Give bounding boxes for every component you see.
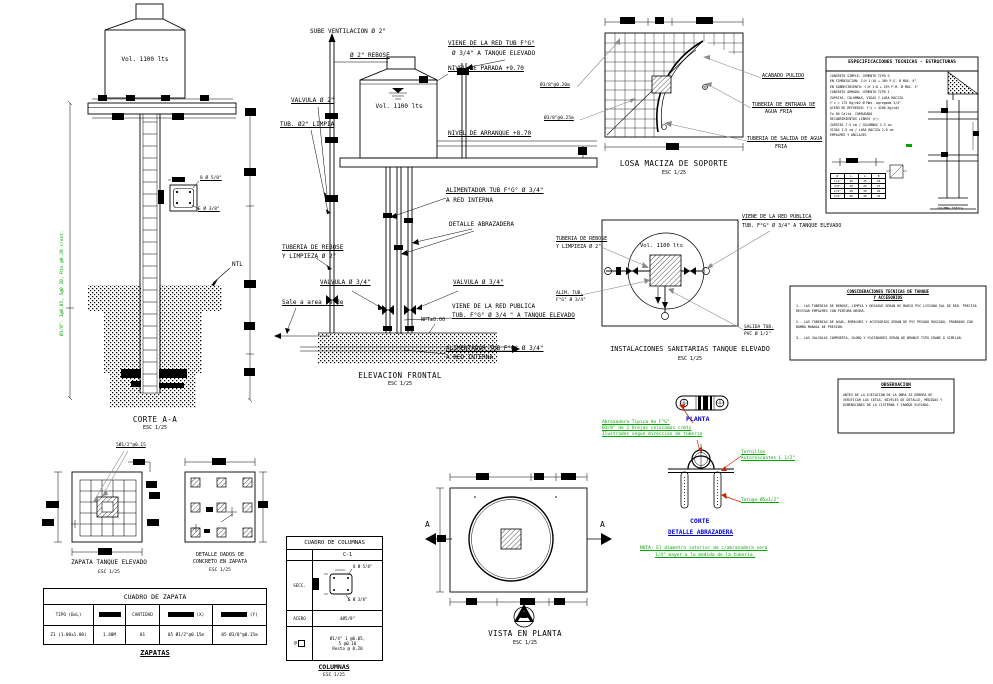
entrada-label-1: TUBERIA DE ENTRADA DE xyxy=(752,103,815,109)
abrazadera-nota-2: 1/4" mayor a la medida de la tuberia. xyxy=(655,553,755,558)
cc-sketch-bar-top: 8 Ø 5/8" xyxy=(353,565,372,569)
viene-red-label-1: VIENE DE LA RED TUB F°G° xyxy=(448,41,535,48)
cz-header-tipo: TIPO (BxL) xyxy=(44,605,94,626)
alimentador1-label-1: ALIMENTADOR TUB F°G° Ø 3/4" xyxy=(446,188,544,195)
inst-rebose-label-2: Y LIMPIEZA Ø 2" xyxy=(556,245,601,251)
corte-title: CORTE A-A xyxy=(118,416,192,424)
columnas-footer-scale: ESC 1/25 xyxy=(299,673,369,678)
vista-scale: ESC 1/25 xyxy=(465,641,585,647)
consideraciones-item: 3.- LAS VALVULAS COMPUERTA, GLOBO Y FLOT… xyxy=(796,336,980,341)
cc-title: CUADRO DE COLUMNAS xyxy=(287,537,383,550)
ntl-label: NTL xyxy=(232,262,243,269)
elevacion-title: ELEVACION FRONTAL xyxy=(350,372,450,380)
abrazadera-green-note-1: Abrazadera Tipica de F°G° xyxy=(602,420,670,425)
empalme-cell: 50 xyxy=(844,194,858,199)
dados-drawing xyxy=(185,458,268,542)
cuadro-zapata-table: CUADRO DE ZAPATA TIPO (BxL) CANTIDAD (X)… xyxy=(43,588,267,645)
tuberia-rebose-label-2: Y LIMPIEZA Ø 2" xyxy=(282,254,336,261)
salida-label-1: TUBERIA DE SALIDA DE AGUA xyxy=(747,137,822,143)
empalme-cell: 25 xyxy=(872,194,886,199)
entrada-label-2: AGUA FRIA xyxy=(765,110,792,116)
red-publica-label-1: VIENE DE LA RED PUBLICA xyxy=(452,304,535,311)
alimentador2-label-2: A RED INTERNA xyxy=(446,355,493,362)
dados-scale: ESC 1/25 xyxy=(184,568,256,573)
cc-secc-label: SECC. xyxy=(287,561,313,611)
cz-header-y-suffix: (Y) xyxy=(250,613,258,618)
inst-rebose-label-1: TUBERIA DE REBOSE xyxy=(556,237,607,243)
cz-header-x-suffix: (X) xyxy=(196,613,204,618)
cad-sheet: NTL 8 Ø 5/8" E Ø 3/8" CORTE A-A ESC 1/25… xyxy=(0,0,993,684)
cc-acero-value: 4Ø5/8" xyxy=(313,611,383,627)
abrazadera-planta-title: PLANTA xyxy=(686,416,709,423)
espec-title: ESPECIFICACIONES TECNICAS - ESTRUCTURAS xyxy=(828,60,976,65)
cz-cell-peralte: 1.40M xyxy=(94,626,126,645)
nivel-arranque-label: NIVEL DE ARRANQUE +8.70 xyxy=(448,131,531,138)
zapata-rebar-label: 5Ø1/2"@0.15 xyxy=(116,443,146,448)
elev-tank-volume: Vol. 1100 lts xyxy=(370,104,428,111)
tuberia-rebose-label-1: TUBERIA DE REBOSE xyxy=(282,245,343,252)
npt-label: NPT±0.00 xyxy=(421,318,445,324)
cc-estribo-line: Resto @ 0.20 xyxy=(314,646,381,651)
empalme-cell: 5/8" xyxy=(831,194,845,199)
tub-limpia-label: TUB. Ø2" LIMPIA xyxy=(280,122,334,129)
observacion-title: OBSERVACION xyxy=(840,383,952,388)
abrazadera-detalle-title: DETALLE ABRAZADERA xyxy=(668,530,733,537)
cc-col-id: C-1 xyxy=(313,550,383,561)
instalaciones-scale: ESC 1/25 xyxy=(590,357,790,363)
salida-label-2: FRIA xyxy=(775,145,787,151)
abrazadera-corte-title: CORTE xyxy=(690,518,710,525)
section-marker-a-left: A xyxy=(425,521,430,530)
cuadro-columnas-table: CUADRO DE COLUMNAS C-1 SECC. ACERO4Ø5/8"… xyxy=(286,536,383,661)
zapata-title: ZAPATA TANQUE ELEVADO xyxy=(60,560,158,567)
empalme-table: Ø L A B 1/4" 20 15 10 3/8" 30 25 15 1/2"… xyxy=(830,173,886,199)
tornillos-label-2: Autoroscantes L 1/2" xyxy=(741,456,795,461)
valvula2-label: VALVULA Ø 2" xyxy=(291,98,334,105)
zapata-scale: ESC 1/25 xyxy=(60,570,158,575)
vista-title: VISTA EN PLANTA xyxy=(465,630,585,638)
cz-cell-cantidad: 01 xyxy=(126,626,160,645)
columna-tipica-label: COLUMNA TIPICA xyxy=(920,207,980,210)
losa-rebar-label-2: Ø3/8"@0.25m xyxy=(544,116,574,121)
cz-cell-tipo: Z1 (1.00x1.00) xyxy=(44,626,94,645)
instalaciones-drawing xyxy=(581,220,770,330)
abrazadera-green-note-3: Ilustrados segun direccion de tuberia xyxy=(602,432,702,437)
instalaciones-title: INSTALACIONES SANITARIAS TANQUE ELEVADO xyxy=(590,346,790,354)
cc-empty xyxy=(287,550,313,561)
cz-header-peralte-bar xyxy=(94,605,126,626)
empalme-cell: 40 xyxy=(858,194,872,199)
consideraciones-title-2: Y ACCESORIOS xyxy=(792,296,984,300)
rebose-label: Ø 2" REBOSE xyxy=(350,53,390,60)
losa-title: LOSA MACIZA DE SOPORTE xyxy=(604,160,744,168)
stirrup-icon xyxy=(298,640,305,647)
sale-verde-label: Sale a area verde xyxy=(282,300,343,307)
inst-salida-label-2: PVC Ø 1/2" xyxy=(744,332,771,337)
nivel-parada-label: NIVEL DE PARADA +9.70 xyxy=(448,66,524,73)
cz-header-acero-x: (X) xyxy=(160,605,213,626)
losa-rebar-label-1: Ø3/8"@0.20m xyxy=(540,83,570,88)
inst-publica-label-2: TUB. F°G° Ø 3/4" A TANQUE ELEVADO xyxy=(742,224,841,230)
inst-alim-label-1: ALIM. TUB. xyxy=(556,291,583,296)
inst-volume: Vol. 1100 lts xyxy=(640,243,683,249)
valvula34-right-label: VALVULA Ø 3/4" xyxy=(453,280,504,287)
consideraciones-title-1: CONSIDERACIONES TECNICAS DE TANQUE xyxy=(792,290,984,294)
abrazadera-nota-1: NOTA: El diametro interior de c/abrazade… xyxy=(640,546,767,551)
elevacion-scale: ESC 1/25 xyxy=(350,382,450,388)
section-marker-a-right: A xyxy=(600,521,605,530)
espec-line: EMPALMES Y ANCLAJES xyxy=(830,133,930,138)
observacion-text: ANTES DE LA EJECUCION DE LA OBRA SE DEBE… xyxy=(843,393,949,408)
cc-estribo-label: Ø xyxy=(287,627,313,661)
consideraciones-item: 2.- LAS TUBERIAS DE AGUA, EMPALMES Y ACC… xyxy=(796,320,980,330)
abrazadera-green-note-2: Ø1/8" de 2 Orejas colocados c/mts xyxy=(602,426,691,431)
inst-alim-label-2: F°G° Ø 3/4" xyxy=(556,298,586,303)
consideraciones-item: 1.- LAS TUBERIAS DE REBOSE, LIMPIA Y DES… xyxy=(796,304,980,314)
cz-header-cantidad: CANTIDAD xyxy=(126,605,160,626)
corte-scale: ESC 1/25 xyxy=(118,426,192,432)
corte-aa-drawing xyxy=(66,4,256,408)
acabado-pulido-label: ACABADO PULIDO xyxy=(762,74,804,80)
dados-title-1: DETALLE DADOS DE xyxy=(184,553,256,559)
cc-sketch-bar-bottom: E Ø 3/8" xyxy=(348,598,367,602)
red-publica-label-2: TUB. F°G° Ø 3/4 " A TANQUE ELEVADO xyxy=(452,313,575,320)
inst-salida-label-1: SALIDA TUB. xyxy=(744,325,774,330)
corte-stirrup-note: Ø3/8": 1@0.05, 5@0.10, Rto.@0.20 c/ext. xyxy=(60,166,65,336)
vista-planta-drawing xyxy=(425,473,612,627)
losa-maciza-drawing xyxy=(577,17,761,151)
cuadro-zapata-title: CUADRO DE ZAPATA xyxy=(44,589,267,605)
zapata-drawing xyxy=(42,451,160,556)
cc-estribo-symbol: Ø xyxy=(294,641,297,646)
corte-tank-volume: Vol. 1100 lts xyxy=(115,57,175,64)
zapatas-footer-title: ZAPATAS xyxy=(118,650,192,658)
corte-bar-bottom-label: E Ø 3/8" xyxy=(198,207,220,212)
cc-estribo-value: Ø1/4" 1 @0.05, 5 @0.10 Resto @ 0.20 xyxy=(313,627,383,661)
columnas-footer-title: COLUMNAS xyxy=(299,664,369,671)
alimentador1-label-2: A RED INTERNA xyxy=(446,198,493,205)
losa-scale: ESC 1/25 xyxy=(604,171,744,177)
alimentador2-label-1: ALIMENTADOR TUB F°G° Ø 3/4" xyxy=(446,346,544,353)
cz-cell-acero-y: 05 Ø3/8"@0.15m xyxy=(213,626,267,645)
vent-label: SUBE VENTILACION Ø 2" xyxy=(310,29,386,36)
espec-text-block: CONCRETO SIMPLE: CEMENTO TIPO G EN CIMEN… xyxy=(830,74,930,139)
detalle-abrazadera-callout: DETALLE ABRAZADERA xyxy=(449,222,514,229)
dados-title-2: CONCRETO EN ZAPATA xyxy=(184,560,256,566)
inst-publica-label-1: VIENE DE LA RED PUBLICA xyxy=(742,215,811,221)
tarugo-label: Tarugo Ø5x1/2" xyxy=(741,498,779,503)
corte-bar-top-label: 8 Ø 5/8" xyxy=(200,176,222,181)
cz-cell-acero-x: 05 Ø1/2"@0.15m xyxy=(160,626,213,645)
valvula34-left-label: VALVULA Ø 3/4" xyxy=(320,280,371,287)
abrazadera-drawing xyxy=(668,396,741,508)
cc-acero-label: ACERO xyxy=(287,611,313,627)
cz-header-acero-y: (Y) xyxy=(213,605,267,626)
viene-red-label-2: Ø 3/4" A TANQUE ELEVADO xyxy=(452,51,535,58)
tornillos-label-1: Tornillos xyxy=(741,450,765,455)
